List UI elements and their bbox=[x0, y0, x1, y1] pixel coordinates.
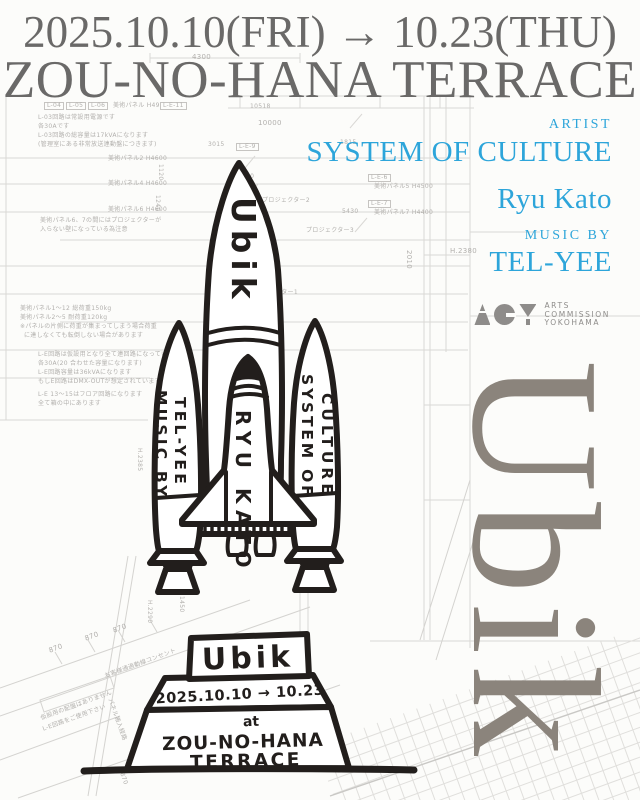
pad-sign-label: Ubik bbox=[201, 639, 294, 677]
pad-venue-line2: TERRACE bbox=[190, 750, 302, 774]
left-booster-label-2: TEL-YEE bbox=[171, 397, 189, 487]
right-booster-label-1: SYSTEM OF bbox=[298, 374, 316, 499]
left-booster-label-1: MUSIC BY bbox=[152, 390, 170, 500]
right-booster-label-2: CULTURE bbox=[318, 393, 336, 498]
tank-label: Ubik bbox=[224, 197, 263, 305]
orbiter-label: RYU KATO bbox=[231, 410, 255, 574]
big-title-vertical: Ubik bbox=[434, 360, 637, 766]
pad-at-label: at bbox=[243, 714, 260, 731]
illustration-layer: Ubik bbox=[0, 0, 640, 800]
poster-root: 4300L-04L-05L-06美術パネル H4930L-E-111051810… bbox=[0, 0, 640, 800]
